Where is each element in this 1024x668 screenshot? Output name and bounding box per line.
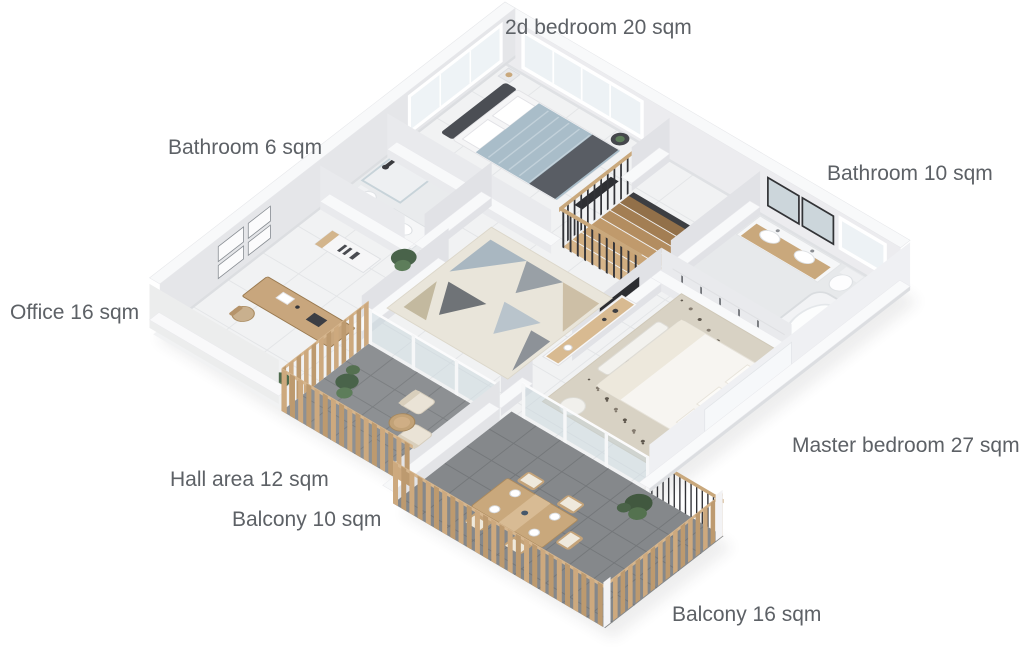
label-bathroom-10: Bathroom 10 sqm xyxy=(827,162,993,186)
floor-plan-page: 2d bedroom 20 sqm Bathroom 6 sqm Bathroo… xyxy=(0,0,1024,668)
label-2d-bedroom: 2d bedroom 20 sqm xyxy=(505,16,692,40)
label-bathroom-6: Bathroom 6 sqm xyxy=(168,136,322,160)
floor-plan-render xyxy=(0,0,1024,668)
label-hall-area: Hall area 12 sqm xyxy=(170,468,329,492)
label-office: Office 16 sqm xyxy=(10,301,139,325)
label-master-bedroom: Master bedroom 27 sqm xyxy=(792,434,1020,458)
label-balcony-10: Balcony 10 sqm xyxy=(232,508,381,532)
label-balcony-16: Balcony 16 sqm xyxy=(672,603,821,627)
